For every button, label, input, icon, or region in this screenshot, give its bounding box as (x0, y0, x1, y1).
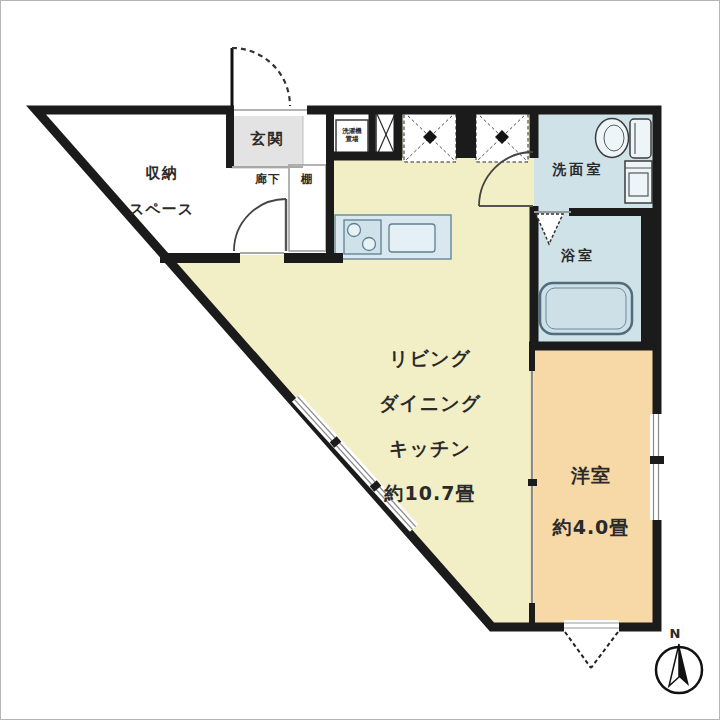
pipe-space-panel (376, 113, 396, 156)
bathtub (540, 283, 632, 334)
washbasin (625, 161, 652, 203)
entrance-tile (232, 110, 303, 168)
shelf-strip (289, 165, 326, 251)
floorplan-drawing (1, 1, 720, 720)
toilet (596, 119, 652, 159)
kitchen-counter (335, 215, 451, 259)
compass (656, 644, 702, 693)
kitchen-sink (389, 224, 435, 252)
western-room-fill (534, 346, 657, 627)
entrance-door (232, 48, 290, 106)
dashed-opening-marker (404, 112, 456, 162)
room-fills (36, 110, 657, 627)
floorplan: 収納 スペース 玄関 廊下 棚 洗濯機置場 洗面室 浴室 リビング ダイニング … (0, 0, 720, 720)
western-room-window (650, 414, 664, 520)
bottom-door-opening (564, 620, 619, 668)
laundry-box (336, 120, 368, 154)
stove-burner (363, 238, 376, 251)
stove-burner (348, 224, 361, 237)
dashed-opening-marker (476, 112, 528, 162)
